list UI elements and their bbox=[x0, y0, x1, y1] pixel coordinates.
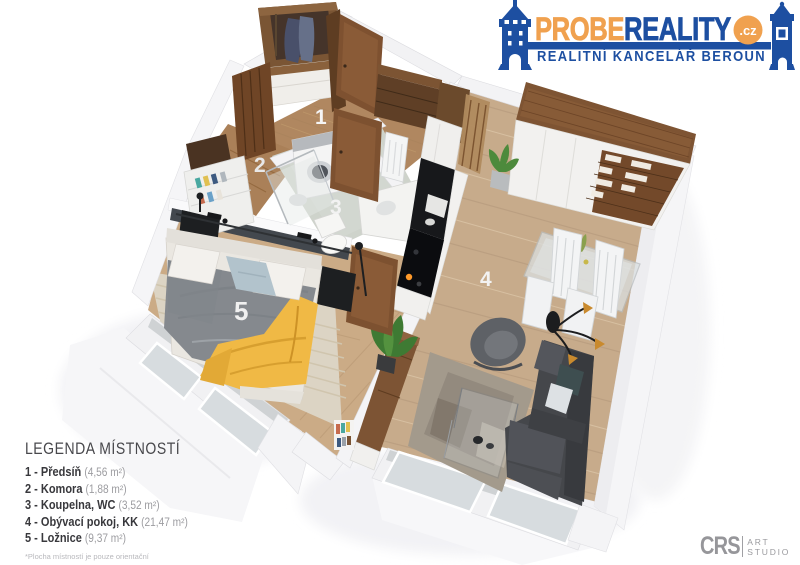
svg-text:2: 2 bbox=[254, 154, 266, 177]
svg-text:.cz: .cz bbox=[739, 23, 757, 38]
svg-text:3: 3 bbox=[330, 196, 342, 219]
svg-text:5: 5 bbox=[234, 296, 248, 326]
svg-text:1: 1 bbox=[315, 106, 327, 129]
svg-text:4: 4 bbox=[480, 268, 492, 291]
